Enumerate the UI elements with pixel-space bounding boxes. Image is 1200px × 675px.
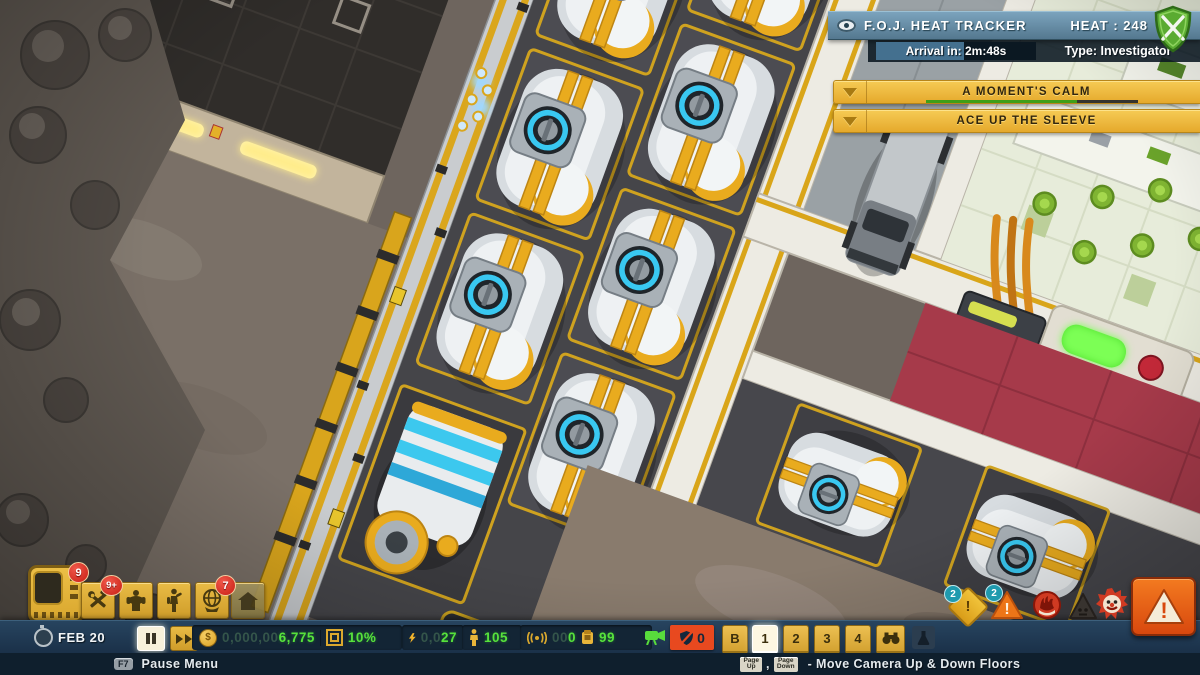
date-group: FEB 20 (34, 625, 105, 650)
build-badge: 9+ (100, 575, 123, 596)
faction-shield-icon (1152, 5, 1194, 53)
minions-group: 105 (462, 625, 522, 650)
objective-banner[interactable]: ACE UP THE SLEEVE (833, 109, 1200, 133)
build-button[interactable]: 9+ (81, 582, 115, 619)
fuel-value: 99 (599, 630, 615, 645)
heat-value: HEAT : 248 (1070, 18, 1148, 33)
muscle-minion-icon (125, 589, 147, 613)
page-down-key: PageDown (774, 657, 798, 672)
key-separator: , (766, 657, 770, 671)
objective-progress-fill (926, 100, 1077, 103)
vault-percent: 10% (348, 630, 377, 645)
pause-button[interactable] (137, 626, 165, 651)
broadcast-badge: 9 (68, 562, 89, 583)
pause-menu-label[interactable]: Pause Menu (142, 657, 219, 671)
floor-1-button[interactable]: 1 (752, 625, 778, 654)
alert-button[interactable]: ! (1131, 577, 1196, 636)
staff-button[interactable] (157, 582, 191, 619)
divider (320, 630, 321, 646)
chevron-down-icon[interactable] (834, 81, 867, 103)
world-map-button[interactable]: 7 (195, 582, 229, 619)
tv-speaker-icon (34, 612, 78, 618)
flask-icon (917, 630, 930, 646)
home-icon (237, 591, 259, 611)
minion-icon (469, 629, 479, 646)
power-icon (409, 630, 416, 646)
minion-count: 105 (484, 630, 508, 645)
threat-value: 0 (697, 630, 705, 646)
research-slot[interactable] (912, 626, 935, 649)
chevron-down-icon[interactable] (834, 110, 867, 132)
objective-progress-bar (926, 100, 1138, 103)
floor-2-button[interactable]: 2 (783, 625, 809, 654)
floor-4-button[interactable]: 4 (845, 625, 871, 654)
heat-tracker-header: F.O.J. HEAT TRACKER HEAT : 248 (828, 11, 1200, 40)
shield-slash-icon (679, 630, 694, 646)
fuel-icon (581, 630, 594, 645)
heat-tracker-title: F.O.J. HEAT TRACKER (864, 18, 1027, 33)
heat-tracker-panel: F.O.J. HEAT TRACKER HEAT : 248 Arrival i… (828, 11, 1200, 62)
stopwatch-icon (34, 628, 53, 647)
game-viewport[interactable]: F.O.J. HEAT TRACKER HEAT : 248 Arrival i… (0, 0, 1200, 675)
sabotage-icon[interactable] (1096, 588, 1128, 620)
footer-bar: F7 Pause Menu PageUp , PageDown - Move C… (0, 653, 1200, 675)
fire-alarm-icon[interactable] (1031, 590, 1063, 621)
money-value: 6,775 (279, 630, 315, 645)
power-dim: 0,0 (421, 630, 441, 645)
arrival-progress: Arrival in: 2m:48s (876, 42, 1036, 60)
intel-dim: 00 (552, 630, 568, 645)
intel-icon (527, 632, 547, 644)
floor-b-button[interactable]: B (722, 625, 748, 654)
money-icon: $ (199, 629, 217, 647)
power-value: 27 (441, 630, 457, 645)
money-dim: 0,000,00 (222, 630, 279, 645)
pause-menu-key: F7 (114, 658, 133, 670)
objective-banners: A MOMENT'S CALM ACE UP THE SLEEVE (833, 80, 1200, 138)
home-button[interactable] (231, 582, 265, 619)
intel-value: 0 (568, 630, 576, 645)
objective-label: A MOMENT'S CALM (867, 86, 1200, 98)
camera-hint-label: - Move Camera Up & Down Floors (808, 657, 1021, 671)
objective-banner[interactable]: A MOMENT'S CALM (833, 80, 1200, 104)
svg-text:!: ! (1004, 601, 1009, 618)
intel-fuel-group: 000 99 (520, 625, 652, 650)
camera-hint-group: PageUp , PageDown - Move Camera Up & Dow… (740, 657, 1020, 672)
vault-icon (326, 629, 343, 646)
svg-text:!: ! (1160, 598, 1167, 623)
game-date: FEB 20 (58, 630, 105, 645)
floor-3-button[interactable]: 3 (814, 625, 840, 654)
camera-icon (644, 629, 666, 645)
danger-badge: 2 (985, 584, 1003, 602)
world-badge: 7 (215, 575, 236, 596)
threat-counter: 0 (670, 625, 714, 650)
arrival-label: Arrival in: 2m:48s (876, 42, 1036, 60)
objective-label: ACE UP THE SLEEVE (867, 115, 1200, 127)
money-group: $ 0,000,006,775 10% (192, 625, 402, 650)
tv-screen-icon (35, 573, 61, 603)
disabled-hazard-icon (1068, 592, 1098, 620)
power-group: 0,027 (402, 625, 464, 650)
binoculars-button[interactable] (876, 625, 905, 654)
objective-progress-rest (1077, 100, 1138, 103)
minions-button[interactable] (119, 582, 153, 619)
eye-icon (837, 19, 856, 32)
broadcast-button[interactable]: 9 (28, 565, 84, 623)
status-bar: FEB 20 $ 0,000,006,775 10% 0,027 105 (0, 620, 1200, 654)
binoculars-icon (882, 632, 900, 645)
page-up-key: PageUp (740, 657, 762, 672)
saluting-minion-icon (165, 588, 183, 613)
alert-triangle-icon: ! (1143, 588, 1185, 626)
warning-badge: 2 (944, 585, 962, 603)
heat-tracker-subheader: Arrival in: 2m:48s Type: Investigator (868, 40, 1200, 62)
